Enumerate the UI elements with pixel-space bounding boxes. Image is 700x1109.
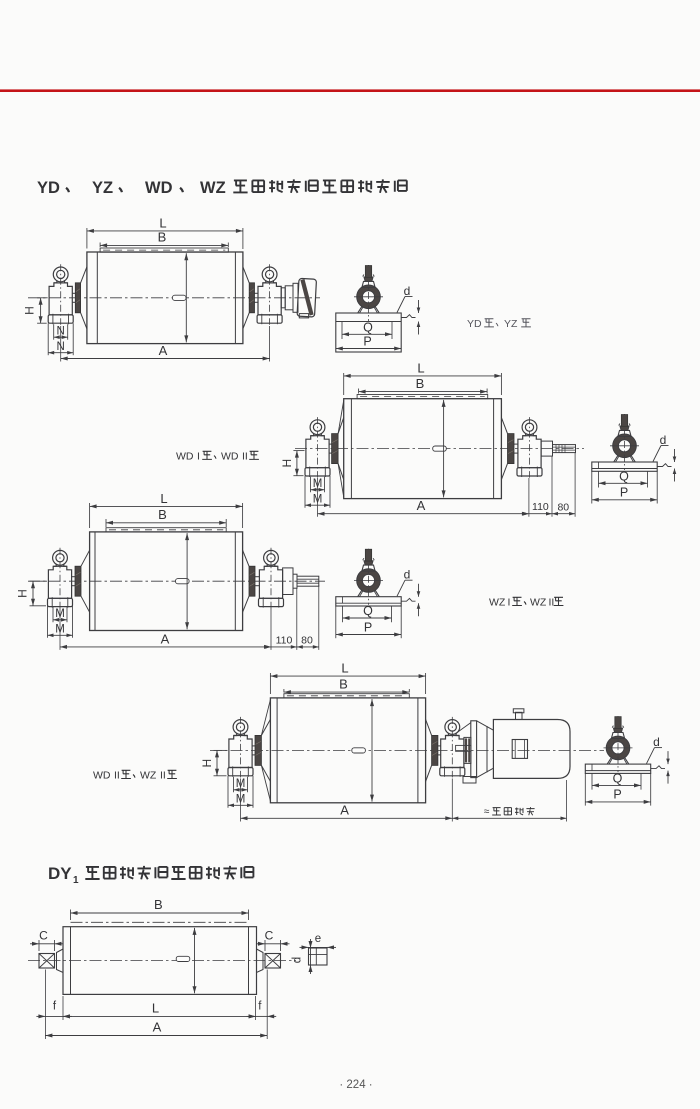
svg-text:A: A — [159, 343, 168, 358]
svg-text:110: 110 — [276, 634, 293, 646]
svg-text:II: II — [549, 597, 555, 609]
svg-text:110: 110 — [532, 501, 549, 513]
svg-text:L: L — [160, 491, 167, 506]
svg-text:WZ: WZ — [200, 179, 226, 197]
svg-text:YD: YD — [37, 179, 60, 197]
svg-text:≈: ≈ — [484, 807, 490, 818]
svg-text:I: I — [197, 451, 200, 463]
svg-text:II: II — [242, 451, 248, 463]
svg-text:M: M — [55, 608, 65, 620]
svg-text:WZ: WZ — [140, 770, 157, 782]
svg-text:II: II — [114, 770, 120, 782]
svg-text:WZ: WZ — [489, 597, 506, 609]
svg-text:H: H — [23, 306, 37, 315]
svg-text:80: 80 — [557, 502, 569, 514]
svg-text:e: e — [315, 933, 321, 945]
svg-text:A: A — [417, 498, 426, 513]
svg-text:P: P — [364, 620, 372, 634]
svg-text:P: P — [363, 334, 371, 348]
svg-text:H: H — [16, 589, 30, 598]
svg-text:d: d — [653, 735, 660, 749]
svg-text:L: L — [417, 360, 424, 375]
svg-text:B: B — [339, 677, 348, 692]
svg-text:P: P — [620, 486, 628, 500]
svg-text:d: d — [404, 568, 411, 582]
svg-text:M: M — [236, 794, 246, 806]
svg-text:YZ: YZ — [504, 318, 518, 330]
svg-text:M: M — [236, 778, 246, 790]
svg-text:N: N — [57, 325, 65, 337]
svg-text:Q: Q — [363, 604, 373, 618]
svg-text:WD: WD — [176, 451, 194, 463]
svg-text:C: C — [39, 928, 48, 942]
svg-text:M: M — [55, 624, 65, 636]
svg-text:WD: WD — [93, 770, 111, 782]
svg-text:YD: YD — [467, 318, 482, 330]
svg-text:H: H — [200, 759, 214, 768]
svg-text:A: A — [340, 803, 349, 818]
svg-text:H: H — [280, 459, 294, 468]
svg-text:WZ: WZ — [530, 597, 547, 609]
svg-text:Q: Q — [363, 320, 373, 334]
svg-text:1: 1 — [73, 875, 79, 886]
svg-text:L: L — [152, 1000, 159, 1015]
svg-text:A: A — [161, 631, 170, 646]
svg-text:DY: DY — [48, 864, 72, 883]
svg-text:B: B — [154, 897, 163, 912]
svg-text:Q: Q — [619, 469, 629, 483]
svg-text:L: L — [159, 215, 166, 230]
svg-text:C: C — [265, 928, 274, 942]
svg-text:d: d — [660, 433, 667, 447]
svg-text:M: M — [313, 493, 323, 505]
svg-text:B: B — [158, 230, 167, 245]
svg-text:P: P — [613, 788, 621, 802]
svg-text:M: M — [313, 478, 323, 490]
svg-text:B: B — [416, 376, 425, 391]
svg-text:II: II — [160, 770, 166, 782]
svg-text:· 224 ·: · 224 · — [339, 1079, 372, 1091]
svg-text:A: A — [153, 1019, 162, 1034]
svg-text:N: N — [57, 341, 65, 353]
svg-text:80: 80 — [301, 635, 313, 647]
svg-text:L: L — [341, 661, 348, 676]
svg-text:YZ: YZ — [92, 179, 113, 197]
svg-text:B: B — [158, 507, 167, 522]
svg-text:d: d — [404, 284, 411, 298]
svg-text:WD: WD — [221, 451, 239, 463]
svg-text:I: I — [508, 597, 511, 609]
svg-text:WD: WD — [145, 179, 173, 197]
svg-text:d: d — [292, 957, 304, 963]
svg-text:Q: Q — [613, 771, 623, 785]
